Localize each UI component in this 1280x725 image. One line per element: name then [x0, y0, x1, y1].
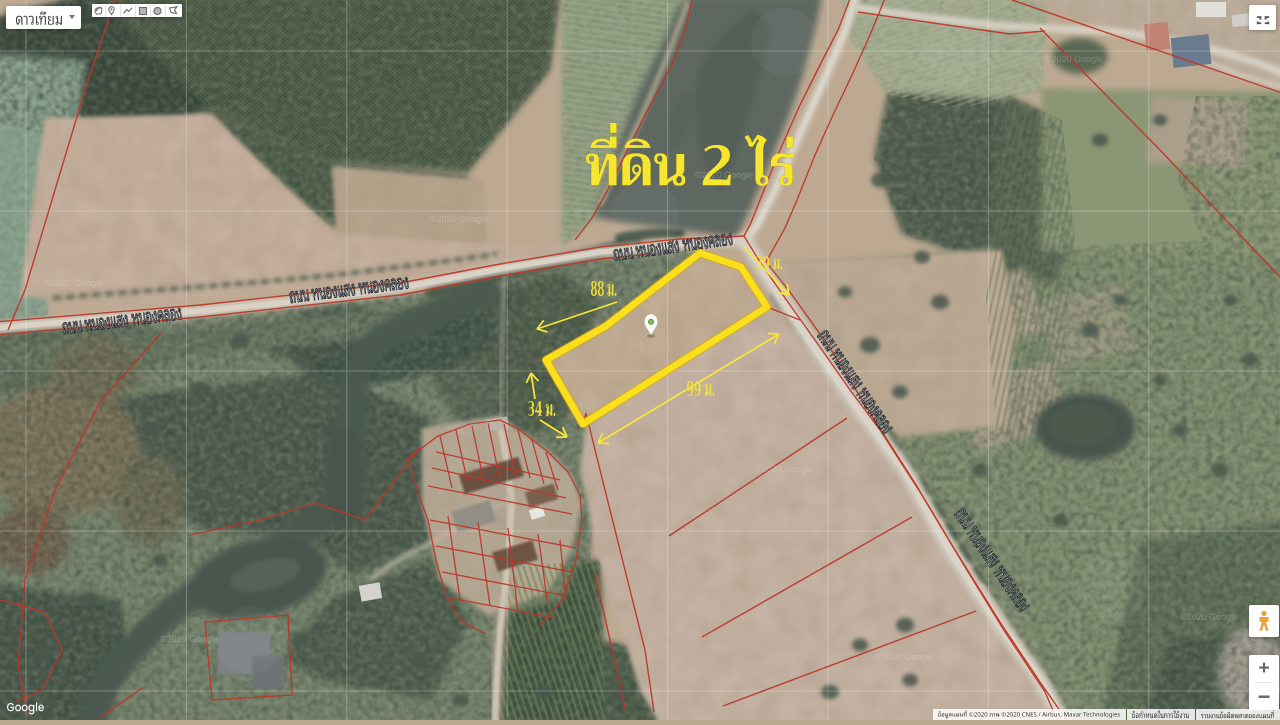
svg-text:©2020 Google: ©2020 Google [160, 634, 218, 644]
svg-text:©2020 Google: ©2020 Google [1180, 612, 1238, 622]
svg-text:©2020 Google: ©2020 Google [875, 652, 933, 662]
svg-text:©2020 Google: ©2020 Google [755, 464, 813, 474]
svg-text:©2020 Google: ©2020 Google [695, 170, 753, 180]
svg-text:©2020 Google: ©2020 Google [45, 278, 103, 288]
svg-text:©2020 Google: ©2020 Google [1045, 54, 1103, 64]
svg-text:©2020 Google: ©2020 Google [430, 214, 488, 224]
